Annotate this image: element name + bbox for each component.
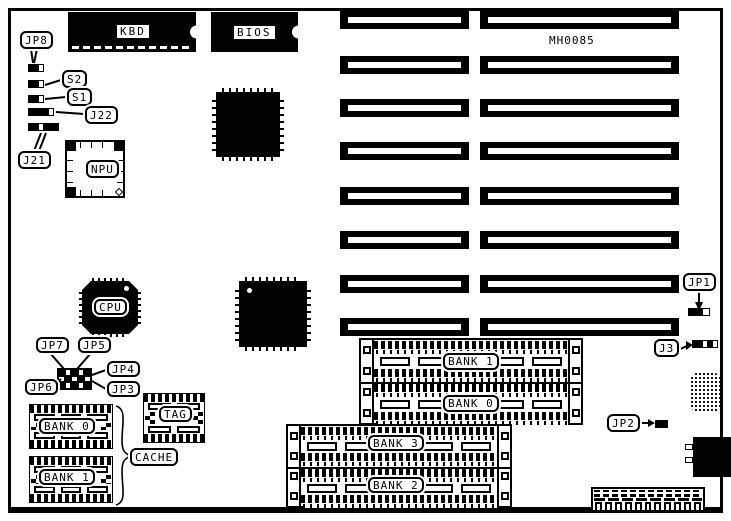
simm-bank2-label: BANK 2	[368, 477, 424, 493]
chip-notch	[190, 26, 197, 39]
jp1-label: JP1	[683, 273, 716, 291]
isa-slot-4-short	[340, 142, 469, 160]
isa-slot-2-long	[480, 56, 679, 74]
isa-slot-2-short	[340, 56, 469, 74]
isa-slot-8-short	[340, 318, 469, 336]
j21-label: J21	[18, 151, 51, 169]
s2-jumper	[28, 80, 43, 88]
chipset-qfp-lower	[239, 281, 307, 347]
jp1-jumper	[688, 308, 709, 316]
isa-slot-5-long	[480, 187, 679, 205]
mounting-pad	[690, 372, 721, 413]
board-part-number: MH0085	[549, 34, 595, 47]
s2-label: S2	[62, 70, 87, 88]
simm-bank1-label: BANK 1	[443, 353, 499, 370]
j22-jumper	[28, 108, 53, 116]
jp2-label: JP2	[607, 414, 640, 432]
j3-label: J3	[654, 339, 679, 357]
tag-label: TAG	[159, 406, 192, 422]
cache-bank0-label: BANK 0	[39, 418, 95, 434]
isa-slot-1-long	[480, 11, 679, 29]
power-connector	[591, 487, 705, 512]
s1-label: S1	[67, 88, 92, 106]
chipset-qfp-upper	[216, 92, 280, 157]
isa-slot-3-long	[480, 99, 679, 117]
j3-jumper	[692, 340, 717, 348]
simm-latches	[288, 426, 301, 506]
s1-jumper	[28, 95, 43, 103]
jp4-label: JP4	[107, 361, 140, 377]
cache-group-label: CACHE	[130, 448, 178, 466]
pin1-dot	[247, 288, 252, 293]
isa-slot-5-short	[340, 187, 469, 205]
pin1-dot	[124, 286, 129, 291]
connector-pin	[685, 444, 693, 450]
bios-label: BIOS	[233, 25, 276, 40]
isa-slot-1-short	[340, 11, 469, 29]
chip-notch	[292, 26, 299, 39]
jp6-label: JP6	[25, 379, 58, 395]
jp3-label: JP3	[107, 381, 140, 397]
cache-bank1-label: BANK 1	[39, 469, 95, 485]
cpu-label: CPU	[94, 299, 127, 315]
simm-bank0-label: BANK 0	[443, 395, 499, 412]
isa-slot-6-long	[480, 231, 679, 249]
j22-label: J22	[85, 106, 118, 124]
npu-label: NPU	[86, 160, 119, 178]
connector-pin	[685, 457, 693, 463]
motherboard-diagram: MH0085 KBD BIOS NPU CPU	[0, 0, 731, 521]
isa-slot-6-short	[340, 231, 469, 249]
isa-slot-4-long	[480, 142, 679, 160]
chip-pins	[72, 46, 192, 49]
jp5-label: JP5	[78, 337, 111, 353]
kbd-label: KBD	[116, 24, 150, 39]
j21-jumper	[28, 123, 58, 131]
jp8-jumper	[28, 64, 43, 72]
simm-bank3-label: BANK 3	[368, 435, 424, 451]
jp2-jumper	[655, 420, 667, 428]
jp8-label: JP8	[20, 31, 53, 49]
isa-slot-3-short	[340, 99, 469, 117]
isa-slot-7-short	[340, 275, 469, 293]
jp7-label: JP7	[36, 337, 69, 353]
cpu-jumper-block	[57, 368, 92, 390]
simm-latches	[497, 426, 510, 506]
isa-slot-8-long	[480, 318, 679, 336]
keyboard-din-connector	[693, 437, 731, 477]
pin1-diamond	[115, 188, 123, 196]
isa-slot-7-long	[480, 275, 679, 293]
